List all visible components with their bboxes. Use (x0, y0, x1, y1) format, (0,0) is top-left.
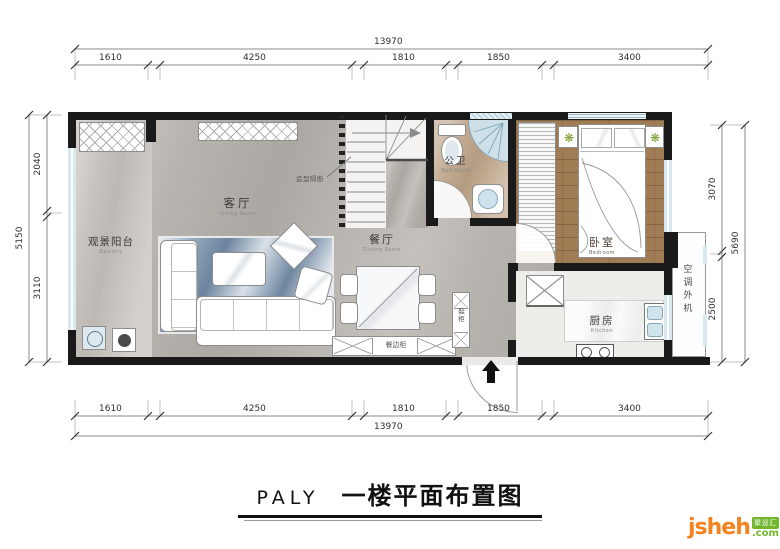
title-underline-shadow (244, 520, 542, 521)
tv-cabinet (198, 122, 298, 141)
dining-chair (418, 302, 436, 324)
wash-basin (472, 184, 504, 214)
sofa-left (160, 240, 198, 332)
pillow (581, 128, 612, 148)
wall-left-top (68, 112, 76, 148)
entry-arrow-stem (487, 371, 495, 383)
dining-chair (340, 274, 358, 296)
stair-corner-floor (386, 161, 428, 228)
page-title: 一楼平面布置图 (341, 476, 523, 511)
dining-chair (340, 302, 358, 324)
wall-bath-bottom-a (426, 218, 438, 226)
dim-bottom-total: 13970 (374, 422, 403, 432)
sofa-main (196, 296, 336, 346)
sideboard-label: 餐边柜 (372, 341, 420, 349)
kitchen-sink (644, 303, 666, 340)
room-label-dining: 餐厅 Dining Room (352, 229, 412, 254)
bedroom-top-window (568, 113, 646, 119)
sink-basin (647, 306, 663, 320)
plant-icon: ❋ (561, 130, 577, 146)
wall-kitchen-left-top (508, 271, 516, 302)
dim-top-seg: 1850 (487, 53, 510, 63)
kitchen-name: 厨房 (590, 315, 615, 327)
partition-label: 造型隔断 (296, 176, 324, 183)
entry-arrow-icon (482, 360, 500, 371)
logo-brand: jsheh (688, 517, 750, 539)
dim-bottom-seg: 1810 (392, 404, 415, 414)
title-block: PALY 一楼平面布置图 (238, 476, 542, 521)
dim-bottom-seg: 4250 (243, 404, 266, 414)
bathroom-top-window (470, 113, 512, 119)
pillow (614, 128, 645, 148)
room-label-balcony: 观景阳台 Balcony (78, 231, 144, 256)
dim-bottom-seg: 3400 (618, 404, 641, 414)
floor-plan-page: 餐边柜 鞋柜 ❋ ❋ (0, 0, 780, 549)
dim-top-seg: 1810 (392, 53, 415, 63)
washing-machine (82, 326, 106, 350)
wall-bottom-right (518, 357, 710, 365)
room-label-kitchen: 厨房 Kitchen (578, 310, 626, 335)
dim-right-total: 5690 (731, 227, 741, 259)
balcony-name-en: Balcony (78, 250, 144, 256)
shoe-cabinet-x-panel (454, 294, 468, 309)
bedroom-name: 卧室 (589, 236, 615, 249)
sideboard-x-panel (417, 338, 455, 354)
dim-bottom-seg: 1610 (99, 404, 122, 414)
sideboard-x-panel (334, 338, 373, 354)
bathroom-name: 公卫 (444, 156, 467, 167)
coffee-table (212, 252, 266, 286)
room-label-ac-platform: 空调外机 (681, 264, 691, 316)
platform-vent-top (703, 246, 707, 264)
room-label-living: 客厅 Living Room (205, 193, 271, 218)
wall-bedroom-bottom-a (508, 263, 518, 271)
bathroom-name-en: BathRoom (433, 169, 479, 175)
basin-bowl (478, 189, 498, 209)
wall-kitchen-right-top (664, 268, 672, 295)
dim-left-seg: 3110 (33, 272, 43, 304)
balcony-name: 观景阳台 (88, 236, 134, 248)
dim-top-total: 13970 (374, 37, 403, 47)
wall-balcony-stub (146, 120, 156, 142)
living-name: 客厅 (224, 196, 253, 210)
appliance-drum-icon (118, 334, 131, 347)
bedroom-side-window (664, 160, 672, 232)
sink-basin (647, 323, 663, 337)
refrigerator (526, 275, 564, 307)
dim-right-seg: 2500 (708, 293, 718, 325)
dining-name-en: Dining Room (352, 248, 412, 254)
living-name-en: Living Room (205, 212, 271, 218)
dim-top-seg: 3400 (618, 53, 641, 63)
wall-bath-bottom-b (470, 218, 516, 226)
wall-bottom-left (68, 357, 462, 365)
balcony-window (68, 148, 76, 330)
washer-drum-icon (87, 331, 103, 347)
dim-top-seg: 4250 (243, 53, 266, 63)
wall-kitchen-right-bottom (664, 340, 672, 357)
logo-tld: .com (752, 529, 779, 539)
title-underline (238, 515, 542, 518)
dining-chair (418, 274, 436, 296)
room-label-bedroom: 卧室 Bedroom (572, 232, 632, 257)
bedroom-name-en: Bedroom (572, 251, 632, 257)
logo-suffix: 聚设汇 .com (752, 517, 779, 539)
dim-right-seg: 3070 (708, 173, 718, 205)
dining-name: 餐厅 (369, 233, 395, 246)
sofa-left-cushions (171, 243, 197, 331)
toilet-tank (438, 124, 466, 136)
dim-left-total: 5150 (15, 222, 25, 254)
title-prefix: PALY (257, 487, 320, 509)
dining-table (356, 266, 420, 330)
nightstand-left: ❋ (558, 126, 578, 148)
nightstand-right: ❋ (644, 126, 664, 148)
shoe-cabinet-x-panel (454, 332, 468, 347)
laundry-appliance (112, 328, 136, 352)
platform-vent-bottom (703, 314, 707, 346)
dim-bottom-seg: 1850 (487, 404, 510, 414)
site-logo: jsheh 聚设汇 .com (688, 517, 779, 539)
shoe-cabinet-label: 鞋柜 (456, 308, 463, 323)
balcony-cabinet (79, 122, 145, 152)
kitchen-name-en: Kitchen (578, 329, 626, 335)
kitchen-window (664, 295, 672, 340)
plant-icon: ❋ (647, 130, 663, 146)
dim-left-seg: 2040 (33, 148, 43, 180)
wall-bath-right (508, 112, 516, 226)
wall-right-upper (664, 112, 672, 160)
decorative-partition (339, 115, 345, 228)
wall-bedroom-bottom-b (554, 263, 672, 271)
room-label-bathroom: 公卫 BathRoom (433, 150, 479, 175)
dim-top-seg: 1610 (99, 53, 122, 63)
sofa-main-cushions (200, 299, 334, 331)
